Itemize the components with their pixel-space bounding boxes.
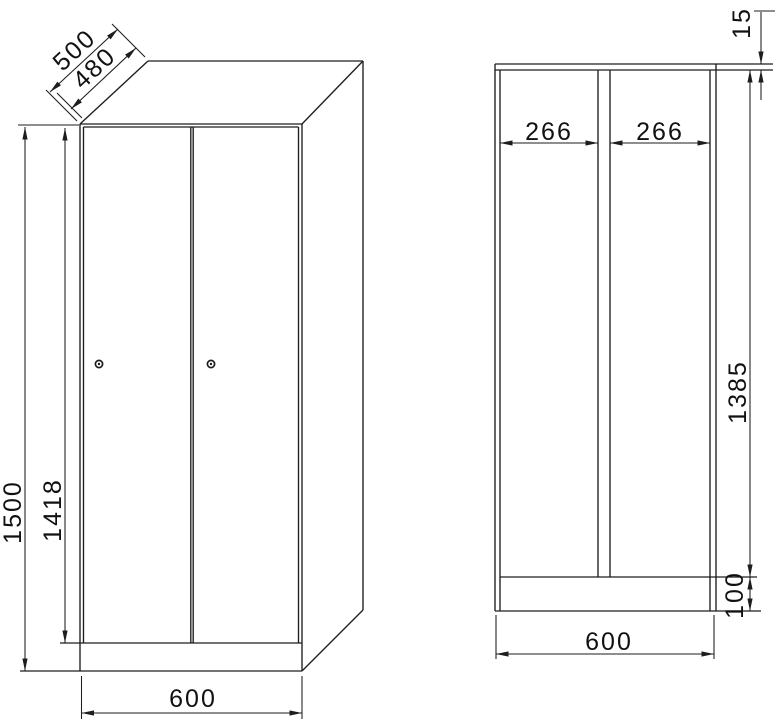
left-door-lock-pin-icon: [98, 363, 100, 365]
right-door-lock-pin-icon: [210, 363, 212, 365]
dim-label-width: 600: [169, 685, 217, 713]
drawing-svg: 500 480 1500 1418 600 266 266: [0, 0, 776, 728]
dim-label-plinth-height: 100: [721, 571, 749, 619]
section-view: [495, 64, 773, 611]
dim-label-interior-height: 1385: [724, 360, 752, 424]
locker-dimension-drawing: 500 480 1500 1418 600 266 266: [0, 0, 776, 728]
top-face-right-slope: [302, 61, 363, 124]
dim-label-section-width: 600: [585, 628, 633, 656]
side-face-bottom-slope: [302, 610, 363, 671]
section-view-dimensions: 266 266 15 1385 100 600: [496, 7, 775, 659]
dim-label-height-total: 1500: [0, 480, 27, 544]
dim-label-top-panel: 15: [728, 7, 756, 39]
dim-label-compartment-left: 266: [525, 118, 573, 146]
front-view: [20, 61, 363, 671]
ext-line-depth-back: [112, 24, 145, 57]
ext-line-depth-front-inner: [57, 93, 82, 118]
dim-label-door-height: 1418: [39, 478, 67, 542]
dim-label-compartment-right: 266: [636, 118, 684, 146]
front-view-dimensions: 500 480 1500 1418 600: [0, 24, 302, 719]
ext-line-depth-front: [46, 90, 77, 121]
